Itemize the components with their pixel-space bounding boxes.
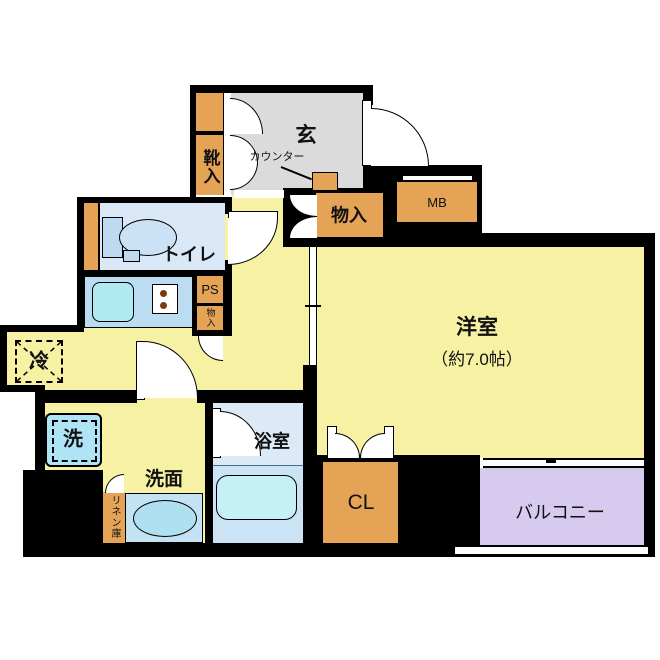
label-washroom: 洗面: [145, 470, 183, 490]
wall-washroom-top-right: [197, 390, 313, 403]
label-toilet: トイレ: [162, 246, 216, 265]
wall-sw-mass: [23, 470, 103, 557]
balcony-window-tick: [546, 460, 556, 463]
wall-washroom-top-left: [35, 390, 137, 403]
toilet-seat-step: [123, 250, 140, 262]
floor-plan: 玄 靴入 カウンター 物入 MB トイレ PS 物入 冷 洋室 （約7.0帖） …: [0, 0, 660, 660]
kitchen-stove: [152, 284, 178, 314]
label-linen-closet: リネン庫: [109, 495, 119, 539]
balcony-window: [483, 458, 644, 468]
wall-western-top-right: [477, 233, 655, 245]
label-balcony: バルコニー: [515, 504, 605, 523]
balcony-rail: [455, 545, 648, 557]
label-meter-box: MB: [427, 196, 447, 210]
label-small-closet: 物入: [206, 308, 215, 328]
label-closet: CL: [348, 492, 375, 514]
wall-bottom: [103, 543, 320, 557]
counter-box: [312, 172, 338, 191]
toilet-shelf: [84, 203, 100, 270]
label-pipe-space: PS: [201, 283, 218, 297]
wall-top-entrance: [190, 85, 373, 93]
wall-bath-right: [303, 365, 317, 455]
label-western-room: 洋室: [456, 317, 498, 339]
wall-toilet-top: [77, 197, 232, 203]
wall-right: [644, 233, 655, 557]
washbasin: [133, 500, 197, 537]
label-counter: カウンター: [250, 152, 305, 164]
wall-left-toilet: [77, 197, 84, 330]
wall-washroom-left: [35, 392, 45, 472]
label-refrigerator: 冷: [29, 352, 49, 373]
stove-burner-1: [160, 290, 167, 297]
bathtub: [216, 475, 297, 520]
label-washer: 洗: [63, 430, 83, 451]
shoe-cabinet-divider: [196, 131, 223, 135]
sliding-door-tick: [305, 305, 321, 307]
entrance-door-arc: [371, 108, 429, 166]
wall-nook-left: [0, 325, 7, 392]
label-western-room-size: （約7.0帖）: [431, 351, 523, 369]
wall-nook-top: [0, 325, 84, 332]
mb-vent: [403, 174, 472, 182]
stove-burner-2: [160, 302, 167, 309]
closet-door-leaf-right: [384, 426, 394, 459]
label-hall-closet: 物入: [331, 207, 367, 226]
label-bathroom: 浴室: [254, 433, 290, 452]
label-shoe-cabinet: 靴入: [202, 149, 219, 185]
label-genkan: 玄: [296, 125, 317, 147]
genkan-step: [234, 190, 284, 198]
kitchen-sink: [92, 282, 134, 322]
